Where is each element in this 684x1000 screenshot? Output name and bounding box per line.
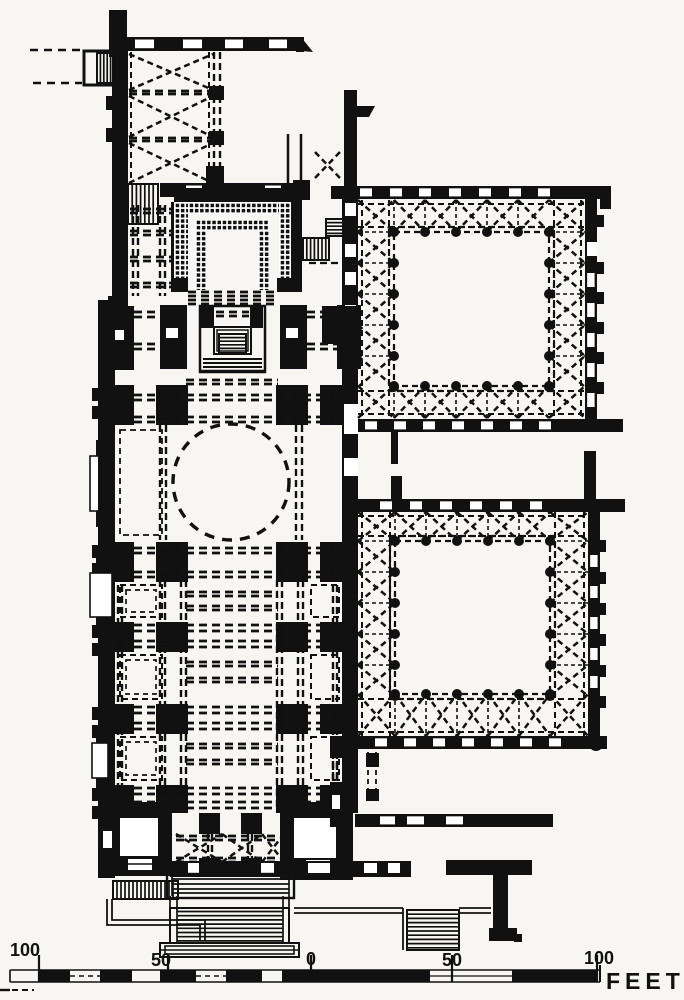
svg-text:50: 50 — [442, 950, 462, 970]
svg-text:0: 0 — [306, 949, 316, 969]
svg-text:100: 100 — [584, 948, 614, 968]
svg-text:50: 50 — [151, 950, 171, 970]
svg-text:FEET: FEET — [606, 968, 684, 994]
svg-text:100: 100 — [10, 940, 40, 960]
